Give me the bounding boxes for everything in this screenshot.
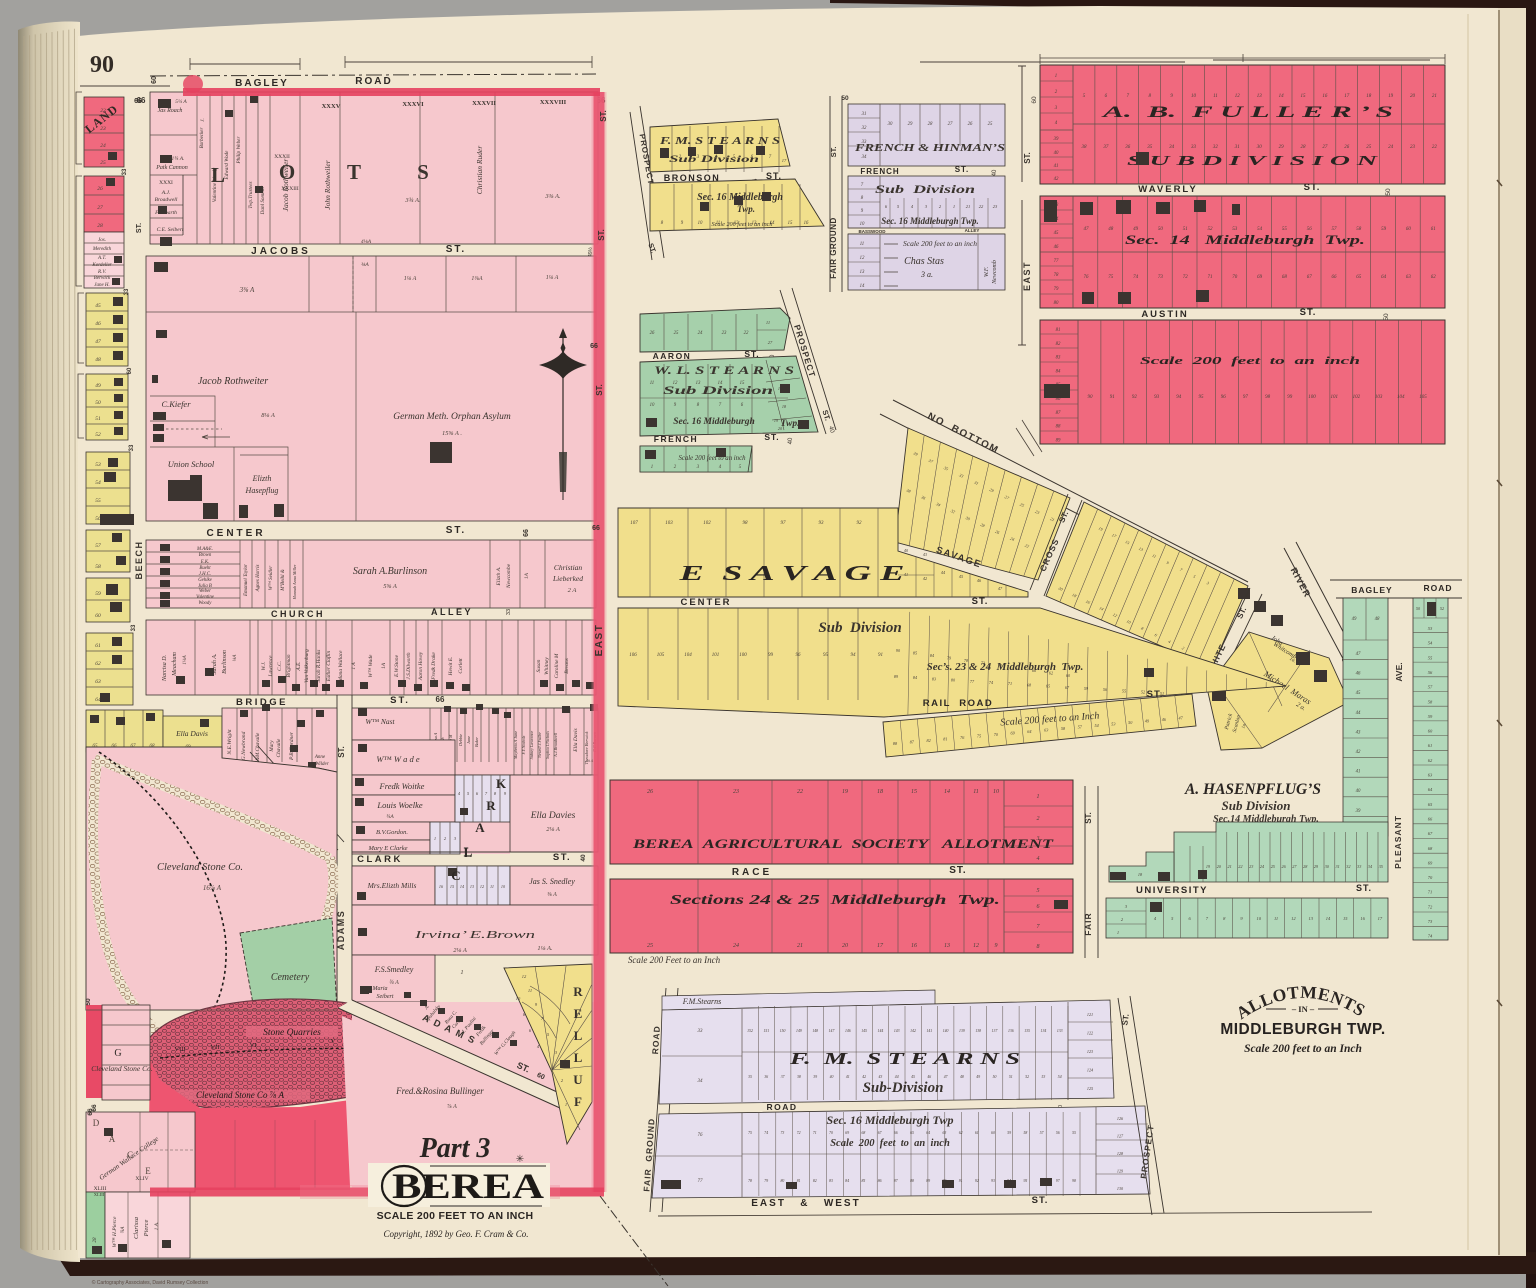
svg-text:RACE: RACE: [732, 867, 772, 878]
svg-text:76: 76: [1084, 275, 1090, 280]
svg-text:Stone Quarries: Stone Quarries: [263, 1028, 321, 1038]
svg-text:Fredk Drake: Fredk Drake: [431, 652, 437, 681]
svg-text:W™ Seidler: W™ Seidler: [268, 566, 274, 591]
svg-text:32: 32: [862, 126, 867, 131]
svg-text:C.E. Seibert: C.E. Seibert: [157, 227, 184, 233]
svg-text:42: 42: [1054, 177, 1059, 182]
svg-text:XLIII: XLIII: [94, 1192, 105, 1197]
svg-text:Mrs.Elizth Mills: Mrs.Elizth Mills: [367, 881, 417, 890]
svg-text:John Rothweiler: John Rothweiler: [323, 160, 332, 209]
svg-text:11: 11: [1274, 916, 1278, 921]
svg-text:A.E.: A.E.: [296, 661, 302, 671]
svg-text:80: 80: [1054, 301, 1059, 306]
svg-text:50: 50: [993, 1075, 997, 1079]
svg-text:76: 76: [698, 1133, 704, 1138]
svg-text:47: 47: [95, 338, 101, 345]
svg-text:Meacham: Meacham: [172, 652, 178, 677]
svg-text:61: 61: [975, 1131, 979, 1135]
svg-text:N.E.Wright: N.E.Wright: [227, 729, 233, 756]
svg-text:F.M.Stearns: F.M.Stearns: [682, 997, 722, 1006]
svg-text:MºBeihl &: MºBeihl &: [280, 569, 286, 592]
svg-text:50: 50: [1383, 313, 1390, 321]
svg-text:Sub Division: Sub Division: [875, 182, 975, 196]
svg-text:61: 61: [1431, 227, 1436, 232]
svg-text:UNIVERSITY: UNIVERSITY: [1136, 885, 1208, 896]
svg-text:R: R: [573, 984, 583, 999]
svg-text:139: 139: [959, 1029, 965, 1033]
svg-text:50: 50: [1158, 227, 1164, 232]
svg-text:15: 15: [788, 221, 793, 226]
svg-text:25: 25: [1366, 145, 1372, 150]
svg-text:24: 24: [1260, 864, 1264, 869]
svg-text:34: 34: [1169, 145, 1175, 150]
svg-text:Scale 200 feet to an inch: Scale 200 feet to an inch: [712, 221, 773, 228]
svg-text:59: 59: [1007, 1131, 1011, 1135]
svg-text:C.C.: C.C.: [277, 661, 283, 671]
svg-text:40: 40: [992, 169, 998, 176]
svg-text:71: 71: [1428, 890, 1433, 895]
svg-text:60: 60: [95, 613, 101, 619]
svg-text:68: 68: [862, 1131, 866, 1135]
svg-text:54: 54: [1095, 723, 1099, 728]
svg-text:152: 152: [747, 1029, 753, 1033]
svg-text:11: 11: [766, 320, 770, 325]
svg-text:84: 84: [930, 653, 934, 658]
svg-text:15⅝ A .: 15⅝ A .: [442, 430, 462, 437]
svg-text:1: 1: [1037, 794, 1040, 800]
svg-text:Patk Cannon: Patk Cannon: [155, 165, 188, 171]
svg-text:66: 66: [894, 1131, 898, 1135]
svg-text:53: 53: [1428, 626, 1433, 631]
svg-text:ST.: ST.: [553, 852, 571, 863]
svg-text:33: 33: [124, 288, 130, 295]
svg-text:40: 40: [1054, 151, 1059, 156]
svg-text:German Meth. Orphan Asylum: German Meth. Orphan Asylum: [393, 412, 511, 422]
svg-text:54: 54: [1428, 641, 1433, 646]
svg-text:22: 22: [1432, 145, 1438, 150]
svg-text:146: 146: [845, 1029, 851, 1033]
svg-text:17: 17: [782, 158, 787, 163]
svg-text:96: 96: [1221, 395, 1227, 400]
svg-text:94: 94: [851, 653, 857, 658]
svg-text:72: 72: [1428, 904, 1433, 909]
svg-text:Part 3: Part 3: [419, 1133, 491, 1164]
svg-text:129: 129: [1117, 1169, 1124, 1174]
svg-text:13: 13: [1257, 94, 1263, 99]
svg-text:1¾ A.: 1¾ A.: [172, 156, 185, 162]
svg-text:45: 45: [1054, 231, 1059, 236]
svg-text:78: 78: [1054, 273, 1059, 278]
svg-text:Newcomb: Newcomb: [992, 260, 998, 285]
svg-text:M.A&E.: M.A&E.: [196, 547, 213, 552]
svg-text:53: 53: [1042, 1075, 1046, 1079]
svg-text:60: 60: [1031, 96, 1038, 104]
svg-text:BEREA: BEREA: [392, 1166, 544, 1206]
svg-text:EAST: EAST: [1022, 261, 1032, 291]
svg-text:W™ W a d e: W™ W a d e: [376, 754, 419, 764]
svg-text:ROAD: ROAD: [355, 76, 392, 87]
svg-text:Jos.: Jos.: [98, 238, 106, 243]
svg-text:82: 82: [1056, 342, 1061, 347]
svg-text:123: 123: [1087, 1049, 1093, 1054]
svg-text:Chavalie: Chavalie: [276, 738, 282, 757]
svg-text:Kordeller: Kordeller: [91, 263, 111, 268]
svg-text:F.Y.Nichols: F.Y.Nichols: [521, 735, 526, 755]
svg-text:51: 51: [1183, 227, 1188, 232]
svg-text:79: 79: [1054, 287, 1059, 292]
svg-text:1⅛ A.: 1⅛ A.: [537, 945, 553, 952]
svg-text:83: 83: [829, 1179, 833, 1183]
svg-text:73: 73: [981, 661, 985, 666]
svg-text:70: 70: [829, 1131, 833, 1135]
svg-text:91: 91: [878, 653, 883, 658]
svg-text:ST.: ST.: [1300, 307, 1317, 318]
svg-text:5⅝ A: 5⅝ A: [383, 583, 397, 590]
svg-text:8⅛ A: 8⅛ A: [261, 412, 275, 419]
svg-text:63: 63: [95, 679, 101, 685]
svg-text:10: 10: [698, 221, 703, 226]
svg-text:1: 1: [460, 969, 463, 976]
svg-text:144: 144: [878, 1029, 884, 1033]
svg-text:R.V.: R.V.: [97, 270, 106, 275]
svg-text:36: 36: [1125, 145, 1131, 150]
svg-text:16: 16: [1360, 916, 1365, 921]
svg-text:121: 121: [1087, 1012, 1093, 1017]
svg-text:31: 31: [862, 112, 867, 117]
svg-text:1: 1: [565, 1102, 567, 1107]
svg-text:ST.: ST.: [390, 695, 410, 706]
svg-text:15: 15: [1301, 94, 1307, 99]
svg-text:35: 35: [1379, 864, 1383, 869]
svg-text:Sections 24 & 25 Middleburgh: Sections 24 & 25 Middleburgh Twp.: [670, 893, 1000, 908]
svg-text:81: 81: [943, 737, 947, 742]
svg-text:Sub Division: Sub Division: [669, 155, 759, 165]
svg-text:65: 65: [1356, 275, 1362, 280]
svg-text:Burlinson: Burlinson: [222, 650, 228, 674]
svg-text:Sub Division: Sub Division: [818, 620, 901, 636]
svg-text:81: 81: [797, 1179, 801, 1183]
svg-text:24: 24: [1388, 145, 1394, 150]
svg-text:Fredk Woitke: Fredk Woitke: [379, 781, 425, 791]
svg-text:Lawrence: Lawrence: [268, 655, 274, 678]
svg-text:Jacob Rothweiter: Jacob Rothweiter: [198, 376, 268, 387]
svg-text:T: T: [347, 160, 361, 184]
svg-text:66: 66: [590, 343, 598, 350]
svg-text:R: R: [486, 798, 496, 813]
svg-text:62: 62: [959, 1131, 963, 1135]
svg-text:98: 98: [1072, 1179, 1076, 1183]
svg-text:Sarah R.Hanks: Sarah R.Hanks: [316, 650, 322, 683]
svg-text:55: 55: [95, 498, 101, 504]
svg-text:W.J.: W.J.: [261, 661, 267, 670]
svg-text:78: 78: [748, 1179, 752, 1183]
svg-text:138: 138: [975, 1029, 981, 1033]
svg-text:92: 92: [975, 1179, 979, 1183]
svg-text:86: 86: [878, 1179, 882, 1183]
svg-text:77: 77: [698, 1179, 704, 1184]
svg-text:45: 45: [911, 1075, 915, 1079]
svg-text:98: 98: [743, 521, 749, 526]
svg-text:ROAD: ROAD: [1423, 583, 1452, 593]
svg-text:ST.: ST.: [1084, 812, 1093, 824]
svg-text:Maria: Maria: [372, 986, 388, 992]
svg-text:11: 11: [650, 381, 654, 386]
svg-text:XXXI: XXXI: [159, 180, 173, 186]
svg-text:VI: VI: [250, 1042, 257, 1049]
svg-text:1⅛ A: 1⅛ A: [404, 276, 417, 282]
svg-text:© Cartography Associates, Davi: © Cartography Associates, David Rumsey C…: [92, 1279, 209, 1286]
svg-text:Scale 200 feet to an inch: Scale 200 feet to an inch: [678, 455, 746, 462]
svg-text:⅜A: ⅜A: [361, 262, 369, 268]
svg-text:93: 93: [819, 521, 825, 526]
svg-text:50: 50: [1385, 188, 1392, 196]
svg-text:71: 71: [813, 1131, 817, 1135]
svg-text:Sarah A.Burlinson: Sarah A.Burlinson: [353, 566, 427, 577]
svg-text:Irvina’ E.Brown: Irvina’ E.Brown: [413, 930, 535, 941]
svg-text:Clarissa: Clarissa: [133, 1217, 140, 1239]
svg-text:26: 26: [647, 789, 653, 795]
svg-text:95: 95: [1199, 395, 1205, 400]
svg-text:Bueht: Bueht: [199, 566, 211, 571]
svg-text:Ella Davies: Ella Davies: [530, 811, 576, 821]
svg-text:85: 85: [862, 1179, 866, 1183]
svg-text:19: 19: [1388, 94, 1394, 99]
svg-text:103: 103: [665, 521, 673, 526]
svg-text:⅞ A: ⅞ A: [447, 1104, 457, 1110]
svg-text:91: 91: [1110, 395, 1115, 400]
svg-text:60: 60: [151, 76, 158, 84]
svg-text:66: 66: [523, 529, 530, 537]
svg-text:6: 6: [1037, 904, 1040, 910]
svg-text:124: 124: [1087, 1068, 1093, 1073]
svg-text:21: 21: [966, 204, 971, 209]
svg-text:E S A V A G E: E S A V A G E: [678, 561, 905, 585]
svg-text:Sec. 16 Middleburgh Twp.: Sec. 16 Middleburgh Twp.: [881, 216, 978, 226]
svg-text:13: 13: [944, 943, 950, 949]
svg-text:96: 96: [796, 653, 802, 658]
svg-text:Cleveland Stone Co ⅞ A: Cleveland Stone Co ⅞ A: [196, 1090, 285, 1100]
svg-text:47: 47: [1084, 227, 1090, 232]
svg-text:66: 66: [1428, 816, 1433, 821]
svg-text:17: 17: [1378, 916, 1383, 921]
svg-text:14: 14: [460, 884, 464, 889]
svg-text:Mary: Mary: [269, 740, 275, 753]
svg-text:52: 52: [95, 432, 101, 438]
svg-text:XXXVI: XXXVI: [402, 101, 424, 108]
svg-text:128: 128: [1117, 1151, 1124, 1156]
svg-text:32: 32: [1213, 145, 1219, 150]
svg-text:EAST & WEST: EAST & WEST: [751, 1198, 860, 1209]
svg-text:ST.: ST.: [446, 244, 466, 255]
svg-text:77: 77: [1054, 259, 1059, 264]
svg-text:ST.: ST.: [446, 525, 466, 536]
svg-text:100: 100: [1308, 395, 1316, 400]
svg-text:31: 31: [1235, 145, 1240, 150]
svg-text:93: 93: [991, 1179, 995, 1183]
svg-text:43: 43: [923, 552, 927, 557]
svg-text:ST.: ST.: [597, 229, 606, 241]
svg-text:48: 48: [960, 1075, 964, 1079]
svg-text:D: D: [93, 1118, 100, 1128]
svg-text:14: 14: [944, 788, 950, 795]
svg-text:Anne: Anne: [314, 755, 326, 760]
svg-text:22: 22: [979, 204, 984, 209]
svg-text:46: 46: [1054, 245, 1059, 250]
svg-text:1: 1: [953, 204, 955, 209]
svg-text:ST.: ST.: [1032, 1195, 1049, 1206]
svg-text:10: 10: [650, 403, 655, 408]
svg-text:RAIL ROAD: RAIL ROAD: [923, 698, 993, 709]
svg-text:125: 125: [1087, 1086, 1093, 1091]
svg-text:45: 45: [959, 574, 963, 579]
svg-text:62: 62: [1431, 275, 1437, 280]
svg-text:AVE.: AVE.: [1394, 662, 1404, 681]
svg-text:Sec. 16 Middleburgh Twp: Sec. 16 Middleburgh Twp: [827, 1113, 954, 1127]
svg-text:S U B D I V I S I O N: S U B D I V I S I O N: [1127, 153, 1380, 168]
svg-text:74: 74: [764, 1131, 768, 1135]
svg-text:56: 56: [1428, 670, 1433, 675]
svg-text:5: 5: [1037, 888, 1040, 894]
svg-text:42: 42: [923, 576, 927, 581]
svg-text:82: 82: [813, 1179, 817, 1183]
svg-text:14: 14: [1326, 916, 1331, 921]
svg-text:FAIR: FAIR: [1083, 912, 1093, 935]
svg-text:48: 48: [95, 356, 101, 363]
svg-text:1⅛ A: 1⅛ A: [546, 275, 559, 281]
svg-text:26: 26: [650, 331, 655, 336]
svg-text:F.S.Smedley: F.S.Smedley: [374, 965, 414, 974]
svg-text:Valentine: Valentine: [196, 595, 215, 600]
svg-text:19: 19: [842, 789, 848, 795]
svg-text:PLEASANT: PLEASANT: [1393, 815, 1403, 869]
svg-text:ST.: ST.: [764, 432, 779, 442]
svg-text:75: 75: [977, 734, 981, 739]
svg-text:11: 11: [860, 242, 864, 247]
svg-text:99: 99: [1287, 395, 1293, 400]
svg-text:50: 50: [85, 998, 92, 1006]
svg-text:ST.: ST.: [136, 223, 143, 233]
svg-text:55: 55: [1122, 688, 1126, 693]
svg-text:V: V: [331, 1038, 336, 1045]
svg-text:95: 95: [1024, 1179, 1028, 1183]
svg-text:AARON: AARON: [653, 351, 692, 361]
svg-text:L: L: [211, 163, 225, 187]
svg-text:37: 37: [1103, 145, 1109, 150]
svg-text:XXXVIII: XXXVIII: [540, 99, 567, 106]
svg-text:59: 59: [95, 591, 101, 597]
svg-text:Meredith: Meredith: [92, 247, 112, 252]
svg-text:Agnes Harris: Agnes Harris: [256, 565, 261, 593]
svg-text:22: 22: [744, 331, 749, 336]
svg-text:XLIV: XLIV: [135, 1176, 148, 1182]
svg-text:Jacob Rothweiler: Jacob Rothweiler: [281, 159, 290, 212]
svg-text:MIDDLEBURGH TWP.: MIDDLEBURGH TWP.: [1220, 1021, 1385, 1038]
svg-text:52: 52: [1440, 606, 1444, 611]
svg-text:Ella Davis: Ella Davis: [573, 728, 579, 752]
svg-text:E.K.: E.K.: [200, 560, 210, 565]
svg-text:63: 63: [943, 1131, 947, 1135]
svg-text:15: 15: [911, 789, 917, 795]
svg-text:89: 89: [1056, 438, 1061, 443]
svg-text:62: 62: [1428, 758, 1433, 763]
svg-text:45: 45: [1356, 691, 1361, 696]
svg-text:Jas S. Snedley: Jas S. Snedley: [529, 877, 575, 886]
svg-text:Ella Davis: Ella Davis: [175, 729, 208, 738]
svg-text:89: 89: [926, 1179, 930, 1183]
svg-text:58: 58: [1024, 1131, 1028, 1135]
svg-text:97: 97: [781, 521, 787, 526]
svg-text:39: 39: [813, 1075, 817, 1079]
svg-text:57: 57: [1332, 227, 1338, 232]
svg-text:ST.: ST.: [595, 384, 604, 396]
svg-text:40: 40: [580, 854, 587, 862]
svg-text:ALLEY: ALLEY: [965, 228, 980, 233]
svg-text:127: 127: [1117, 1134, 1124, 1139]
svg-text:55: 55: [1428, 655, 1433, 660]
svg-text:55: 55: [1072, 1131, 1076, 1135]
svg-text:23: 23: [1249, 864, 1253, 869]
svg-text:126: 126: [1117, 1116, 1124, 1121]
svg-text:11: 11: [528, 988, 532, 993]
svg-text:Debbie: Debbie: [458, 734, 463, 747]
svg-text:ST.: ST.: [972, 596, 989, 607]
svg-text:62: 62: [1049, 671, 1053, 676]
svg-text:28: 28: [93, 1237, 98, 1243]
svg-text:ST.: ST.: [1356, 883, 1372, 893]
svg-text:1 A: 1 A: [351, 662, 357, 670]
svg-text:F. M. S T E A R N S: F. M. S T E A R N S: [788, 1049, 1020, 1068]
svg-text:148: 148: [812, 1029, 818, 1033]
svg-text:98: 98: [1265, 395, 1271, 400]
svg-text:141: 141: [926, 1029, 932, 1033]
svg-text:Weber: Weber: [199, 589, 211, 594]
svg-text:Twp.: Twp.: [781, 419, 800, 429]
svg-text:41: 41: [1054, 164, 1059, 169]
svg-text:59: 59: [1381, 227, 1387, 232]
svg-text:12: 12: [973, 943, 979, 949]
svg-text:FRENCH: FRENCH: [860, 167, 899, 176]
svg-text:66: 66: [137, 96, 146, 105]
svg-text:4⅛A: 4⅛A: [361, 238, 372, 245]
svg-text:79: 79: [764, 1179, 768, 1183]
svg-text:9: 9: [995, 943, 998, 949]
svg-text:69: 69: [1257, 275, 1263, 280]
svg-text:67: 67: [1428, 831, 1433, 836]
svg-text:40: 40: [830, 1075, 834, 1079]
svg-text:53: 53: [1111, 722, 1115, 727]
svg-text:74: 74: [1428, 934, 1433, 939]
svg-text:10: 10: [1257, 916, 1262, 921]
svg-text:Cleveland Stone Co.: Cleveland Stone Co.: [157, 862, 243, 873]
svg-text:Scale 200 feet to an inch: Scale 200 feet to an inch: [1140, 355, 1360, 367]
svg-text:46: 46: [927, 1075, 931, 1079]
svg-text:11: 11: [490, 884, 494, 889]
svg-text:75: 75: [748, 1131, 752, 1135]
svg-text:Twp.Trustees: Twp.Trustees: [248, 181, 254, 208]
svg-text:Scale 200 feet to an inch: Scale 200 feet to an inch: [830, 1138, 950, 1149]
svg-text:11: 11: [973, 789, 979, 795]
svg-text:84: 84: [845, 1179, 849, 1183]
svg-text:41: 41: [904, 572, 908, 577]
svg-text:38: 38: [797, 1075, 801, 1079]
svg-text:33: 33: [1357, 864, 1361, 869]
svg-text:50: 50: [841, 95, 849, 102]
svg-text:Van Valkenburg: Van Valkenburg: [304, 649, 310, 683]
svg-text:24: 24: [100, 142, 106, 149]
svg-text:1A: 1A: [524, 572, 530, 579]
svg-text:106: 106: [629, 653, 637, 658]
svg-text:W™ H.Pierce: W™ H.Pierce: [112, 1216, 118, 1247]
